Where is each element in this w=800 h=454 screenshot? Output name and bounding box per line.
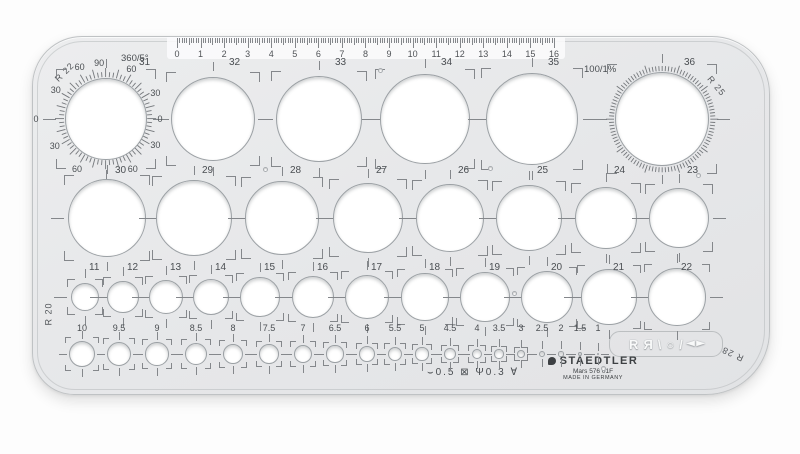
tick-mark [486, 38, 487, 43]
circle-size-label: 6 [364, 323, 369, 333]
tick-mark [549, 38, 550, 43]
tick-mark [309, 38, 310, 43]
tick-mark [479, 218, 492, 219]
corner-bracket [181, 363, 187, 369]
corner-bracket [225, 275, 233, 283]
tick-mark [396, 38, 397, 43]
tick-mark [290, 38, 291, 43]
corner-bracket [341, 342, 347, 348]
pen-width-markings: ⌣0.5 ⊠ Ψ0.3 ∀ [427, 367, 519, 378]
corner-bracket [236, 313, 244, 321]
corner-bracket [179, 310, 187, 318]
corner-bracket [140, 175, 150, 185]
corner-bracket [135, 309, 143, 317]
tick-mark [213, 354, 221, 355]
tick-mark [342, 38, 343, 48]
tick-mark [166, 266, 167, 275]
tick-mark [166, 319, 167, 328]
circle-size-label: 7.5 [263, 323, 276, 333]
corner-bracket [702, 322, 710, 330]
corner-bracket [506, 318, 514, 326]
circle-28 [245, 181, 318, 254]
protractor-degree-label: 60 [128, 164, 138, 174]
tick-mark [321, 38, 322, 43]
tick-mark [439, 38, 440, 43]
corner-bracket [468, 357, 474, 363]
tick-mark [464, 38, 465, 43]
tick-mark [248, 38, 249, 48]
tick-mark [448, 38, 449, 45]
corner-bracket [166, 363, 172, 369]
tick-mark [229, 38, 230, 43]
corner-bracket [453, 357, 459, 363]
circle-23 [649, 188, 709, 248]
tick-mark [267, 38, 268, 43]
tick-mark [401, 38, 402, 45]
tick-mark [361, 38, 362, 43]
circle-size-label: 34 [441, 58, 452, 68]
tick-mark [391, 38, 392, 43]
tick-mark [196, 333, 197, 341]
circle-30 [68, 179, 147, 258]
tick-mark [211, 320, 212, 329]
tick-mark [415, 38, 416, 43]
tick-mark [460, 38, 461, 48]
tick-mark [606, 254, 607, 263]
corner-bracket [250, 72, 260, 82]
tick-mark [330, 38, 331, 45]
tick-mark [213, 62, 214, 71]
tick-mark [54, 297, 67, 298]
alignment-hole [378, 68, 383, 73]
tick-mark [375, 38, 376, 43]
tick-mark [255, 38, 256, 43]
alignment-hole [696, 173, 701, 178]
corner-bracket [571, 183, 581, 193]
tick-mark [405, 354, 413, 355]
tick-mark [542, 38, 543, 45]
tick-mark [462, 38, 463, 43]
corner-bracket [276, 341, 282, 347]
corner-bracket [400, 343, 406, 349]
corner-bracket [65, 365, 71, 371]
circle-19 [460, 272, 510, 322]
tick-mark [179, 38, 180, 43]
corner-bracket [142, 339, 148, 345]
ruler-number: 6 [316, 49, 321, 59]
tick-mark [368, 38, 369, 43]
corner-bracket [456, 318, 464, 326]
tick-mark [552, 38, 553, 43]
corner-bracket [644, 322, 652, 330]
circle-size-label: 15 [264, 263, 275, 273]
tick-mark [474, 38, 475, 43]
circle-size-label: 29 [202, 166, 213, 176]
corner-bracket [145, 276, 153, 284]
tick-mark [302, 38, 303, 43]
corner-bracket [256, 341, 262, 347]
tick-mark [318, 38, 319, 48]
circle-18 [401, 273, 448, 320]
tick-mark [51, 218, 64, 219]
tick-mark [368, 258, 369, 267]
brand-model: Mars 576 01F [513, 368, 673, 375]
tick-mark [598, 357, 599, 365]
tick-mark [191, 38, 192, 43]
brand-origin: MADE IN GERMANY [513, 375, 673, 381]
tick-mark [328, 38, 329, 43]
tick-mark [399, 218, 412, 219]
corner-bracket [93, 337, 99, 343]
tick-mark [561, 359, 562, 367]
tick-mark [384, 297, 397, 298]
tick-mark [271, 38, 272, 48]
corner-bracket [633, 321, 641, 329]
tick-mark [490, 38, 491, 43]
tick-mark [499, 361, 500, 369]
corner-bracket [491, 356, 497, 362]
corner-bracket [514, 347, 520, 353]
tick-mark [502, 38, 503, 43]
tick-mark [328, 297, 341, 298]
circle-size-label: 3 [518, 323, 523, 333]
corner-bracket [129, 364, 135, 370]
tick-mark [420, 38, 421, 43]
tick-mark [260, 263, 261, 272]
corner-bracket [142, 363, 148, 369]
corner-bracket [166, 339, 172, 345]
photo-background: 360/5° 100/1% R 22 R 25 R 20 R 28 ⌣0.5 ⊠… [0, 0, 800, 454]
tick-mark [368, 169, 369, 178]
corner-bracket [341, 360, 347, 366]
tick-mark [529, 354, 537, 355]
tick-mark [533, 38, 534, 43]
corner-bracket [241, 362, 247, 368]
circle-size-label: 20 [551, 263, 562, 273]
corner-bracket [103, 364, 109, 370]
tick-mark [295, 38, 296, 48]
corner-bracket [556, 181, 566, 191]
tick-mark [59, 354, 67, 355]
corner-bracket [441, 357, 447, 363]
tick-mark [516, 38, 517, 43]
corner-bracket [397, 269, 405, 277]
tick-mark [476, 38, 477, 43]
tick-mark [485, 327, 486, 336]
tick-mark [514, 38, 515, 43]
tick-mark [395, 363, 396, 371]
tick-mark [182, 38, 183, 43]
corner-bracket [397, 179, 407, 189]
circle-10 [69, 341, 95, 367]
staedtler-head-logo-icon [548, 357, 556, 365]
corner-bracket [271, 157, 281, 167]
tick-mark [97, 354, 105, 355]
tick-mark [228, 218, 241, 219]
tick-mark [335, 38, 336, 43]
corner-bracket [556, 245, 566, 255]
tick-mark [425, 170, 426, 179]
protractor-tick-ring [605, 62, 719, 176]
tick-mark [535, 38, 536, 43]
tick-mark [304, 38, 305, 43]
corner-bracket [426, 344, 432, 350]
tick-mark [262, 38, 263, 43]
corner-bracket [645, 242, 655, 252]
protractor-degree-label: 60 [126, 64, 136, 74]
tick-mark [377, 38, 378, 45]
circle-size-label: 13 [170, 263, 181, 273]
circle-size-label: 8 [230, 323, 235, 333]
tick-mark [351, 38, 352, 43]
circle-size-label: 14 [215, 263, 226, 273]
circle-27 [333, 183, 404, 254]
tick-mark [249, 354, 257, 355]
corner-bracket [64, 175, 74, 185]
circle-33 [276, 76, 362, 162]
corner-bracket [189, 311, 197, 319]
corner-bracket [645, 184, 655, 194]
tick-mark [542, 359, 543, 367]
corner-bracket [426, 358, 432, 364]
tick-mark [434, 354, 442, 355]
brand-name: STAEDTLER [560, 355, 639, 367]
tick-mark [250, 38, 251, 43]
tick-mark [564, 297, 577, 298]
alignment-hole [512, 291, 517, 296]
corner-bracket [166, 72, 176, 82]
corner-bracket [372, 359, 378, 365]
corner-bracket [103, 338, 109, 344]
tick-mark [434, 38, 435, 43]
circle-32 [171, 77, 255, 161]
tick-mark [276, 38, 277, 43]
tick-mark [529, 256, 530, 265]
circle-9 [145, 342, 169, 366]
tick-mark [297, 38, 298, 43]
ruler-number: 5 [292, 49, 297, 59]
corner-bracket [181, 339, 187, 345]
tick-mark [269, 38, 270, 43]
cutout-glyph: ○ [666, 338, 674, 351]
corner-bracket [385, 271, 393, 279]
tick-mark [219, 38, 220, 43]
tick-mark [316, 218, 329, 219]
corner-bracket [288, 314, 296, 322]
tick-mark [233, 334, 234, 342]
tick-mark [495, 38, 496, 45]
tick-mark [337, 38, 338, 43]
corner-bracket [179, 276, 187, 284]
corner-bracket [241, 177, 251, 187]
tick-mark [186, 38, 187, 43]
tick-mark [450, 338, 451, 346]
corner-bracket [514, 355, 520, 361]
tick-mark [526, 38, 527, 43]
corner-bracket [441, 345, 447, 351]
circle-21 [581, 269, 636, 324]
tick-mark [632, 218, 645, 219]
tick-mark [394, 38, 395, 43]
tick-mark [493, 38, 494, 43]
cutout-glyph: ◂ [686, 339, 694, 349]
circle-size-label: 12 [127, 263, 138, 273]
corner-bracket [468, 345, 474, 351]
circle-size-label: 8.5 [190, 323, 203, 333]
corner-bracket [226, 176, 236, 186]
circle-size-label: 25 [537, 166, 548, 176]
tick-mark [429, 38, 430, 43]
circle-25 [496, 185, 562, 251]
tick-mark [205, 38, 206, 43]
corner-bracket [644, 264, 652, 272]
corner-bracket [356, 359, 362, 365]
ruler-number: 0 [174, 49, 179, 59]
corner-bracket [517, 267, 525, 275]
tick-mark [157, 368, 158, 376]
tick-mark [257, 38, 258, 43]
tick-mark [319, 61, 320, 70]
tick-mark [363, 38, 364, 43]
tick-mark [340, 38, 341, 43]
tick-mark [406, 38, 407, 43]
cutout-glyph: Я [643, 338, 652, 351]
cutout-glyph: / [679, 338, 683, 351]
tick-mark [213, 167, 214, 176]
ruler-number: 9 [387, 49, 392, 59]
tick-mark [258, 119, 271, 120]
corner-bracket [189, 275, 197, 283]
tick-mark [417, 38, 418, 43]
tick-mark [269, 366, 270, 374]
tick-mark [370, 38, 371, 43]
tick-mark [274, 38, 275, 43]
corner-bracket [480, 357, 486, 363]
cutout-glyph: \ [658, 338, 662, 351]
tick-mark [241, 38, 242, 43]
tick-mark [132, 297, 145, 298]
circle-15 [240, 277, 279, 316]
protractor-tick-ring [54, 67, 157, 170]
corner-bracket [412, 246, 422, 256]
circle-size-label: 5 [419, 323, 424, 333]
circle-size-label: 6.5 [329, 323, 342, 333]
tick-mark [275, 297, 288, 298]
tick-mark [278, 38, 279, 43]
tick-mark [198, 38, 199, 43]
tick-mark [212, 38, 213, 45]
tick-mark [598, 343, 599, 351]
corner-bracket [67, 307, 75, 315]
tick-mark [177, 38, 178, 48]
ruler-number: 10 [408, 49, 418, 59]
tick-mark [378, 354, 386, 355]
tick-mark [548, 354, 556, 355]
tick-mark [710, 297, 723, 298]
corner-bracket [445, 269, 453, 277]
corner-bracket [330, 314, 338, 322]
corner-bracket [250, 156, 260, 166]
corner-bracket [453, 345, 459, 351]
protractor-degree-label: 30 [51, 85, 61, 95]
corner-bracket [412, 344, 418, 350]
tick-mark [349, 354, 357, 355]
corner-bracket [631, 243, 641, 253]
tick-mark [427, 38, 428, 43]
tick-mark [223, 297, 236, 298]
tick-mark [450, 38, 451, 43]
tick-mark [679, 253, 680, 262]
corner-bracket [256, 361, 262, 367]
tick-mark [446, 38, 447, 43]
corner-bracket [384, 343, 390, 349]
tick-mark [210, 38, 211, 43]
protractor-degree-label: 60 [72, 164, 82, 174]
ruler-number: 12 [455, 49, 465, 59]
corner-bracket [310, 361, 316, 367]
tick-mark [226, 38, 227, 43]
corner-bracket [288, 272, 296, 280]
tick-mark [468, 119, 481, 120]
tick-mark [284, 354, 292, 355]
tick-mark [488, 38, 489, 43]
tick-mark [441, 38, 442, 43]
tick-mark [479, 38, 480, 43]
tick-mark [483, 38, 484, 48]
tick-mark [354, 38, 355, 45]
tick-mark [300, 38, 301, 43]
corner-bracket [103, 309, 111, 317]
tick-mark [238, 38, 239, 43]
tick-mark [135, 354, 143, 355]
tick-mark [609, 330, 610, 339]
circle-size-label: 26 [458, 166, 469, 176]
tick-mark [545, 38, 546, 43]
corner-bracket [631, 183, 641, 193]
tick-mark [222, 38, 223, 43]
tick-mark [335, 365, 336, 373]
tick-mark [403, 38, 404, 43]
tick-mark [314, 38, 315, 43]
circle-17 [345, 275, 390, 320]
corner-bracket [702, 264, 710, 272]
circle-2 [558, 351, 563, 356]
tick-mark [662, 175, 663, 184]
circle-size-label: 11 [89, 263, 99, 273]
tick-mark [425, 326, 426, 335]
tick-mark [713, 218, 726, 219]
circle-size-label: 28 [290, 166, 301, 176]
tick-mark [139, 218, 152, 219]
corner-bracket [129, 338, 135, 344]
tick-mark [450, 257, 451, 266]
ruler-number: 8 [363, 49, 368, 59]
corner-bracket [703, 242, 713, 252]
tick-mark [288, 38, 289, 43]
corner-bracket [456, 268, 464, 276]
circle-size-label: 2 [558, 323, 563, 333]
tick-mark [259, 38, 260, 45]
tick-mark [387, 38, 388, 43]
corner-bracket [573, 160, 583, 170]
corner-bracket [140, 251, 150, 261]
corner-bracket [341, 271, 349, 279]
tick-mark [316, 354, 324, 355]
tick-mark [519, 38, 520, 45]
corner-bracket [290, 341, 296, 347]
corner-bracket [152, 176, 162, 186]
ruler-number: 11 [431, 49, 440, 59]
